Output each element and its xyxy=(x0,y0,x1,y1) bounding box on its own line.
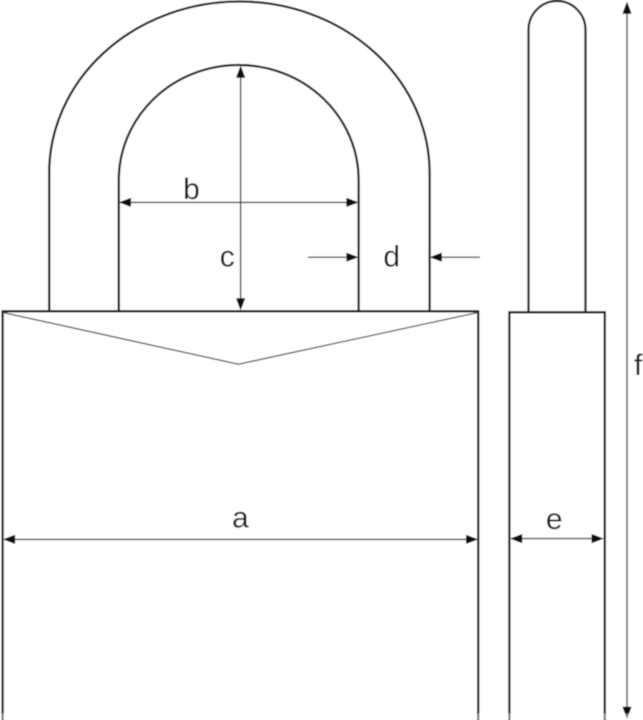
svg-text:d: d xyxy=(383,241,400,274)
svg-text:e: e xyxy=(546,503,563,536)
svg-text:b: b xyxy=(183,173,200,206)
svg-text:c: c xyxy=(220,240,235,273)
svg-text:a: a xyxy=(232,501,249,534)
svg-text:f: f xyxy=(634,349,643,382)
